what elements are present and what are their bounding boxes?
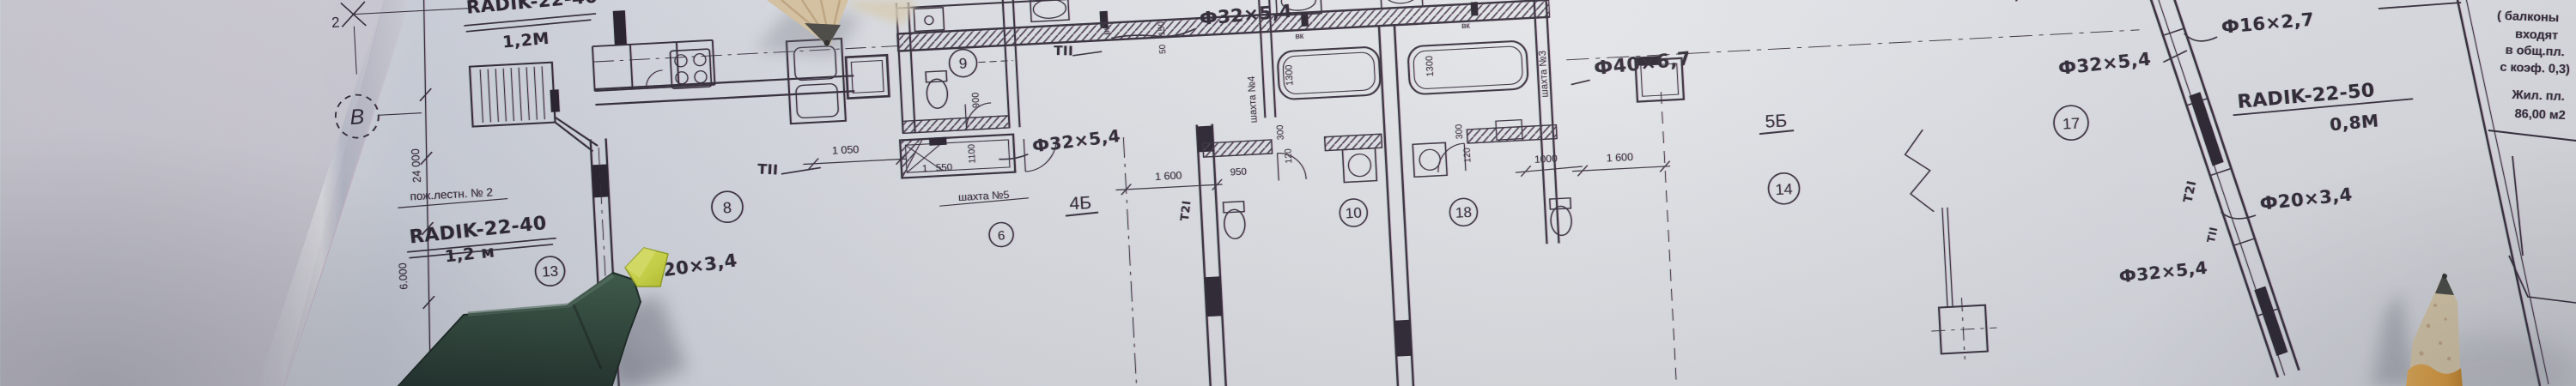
pencil-bottom-tip (2442, 274, 2447, 279)
objects-layer (0, 0, 2576, 386)
pencil-top (756, 0, 917, 57)
pencil-bottom (2372, 273, 2576, 386)
photo-of-blueprint: В 24 000 6.000 2 пож.лестн. № 2 RADIK-22… (0, 0, 2576, 386)
pencil-top-tip (824, 40, 830, 46)
highlighter-body (397, 273, 641, 386)
highlighter (397, 248, 687, 386)
